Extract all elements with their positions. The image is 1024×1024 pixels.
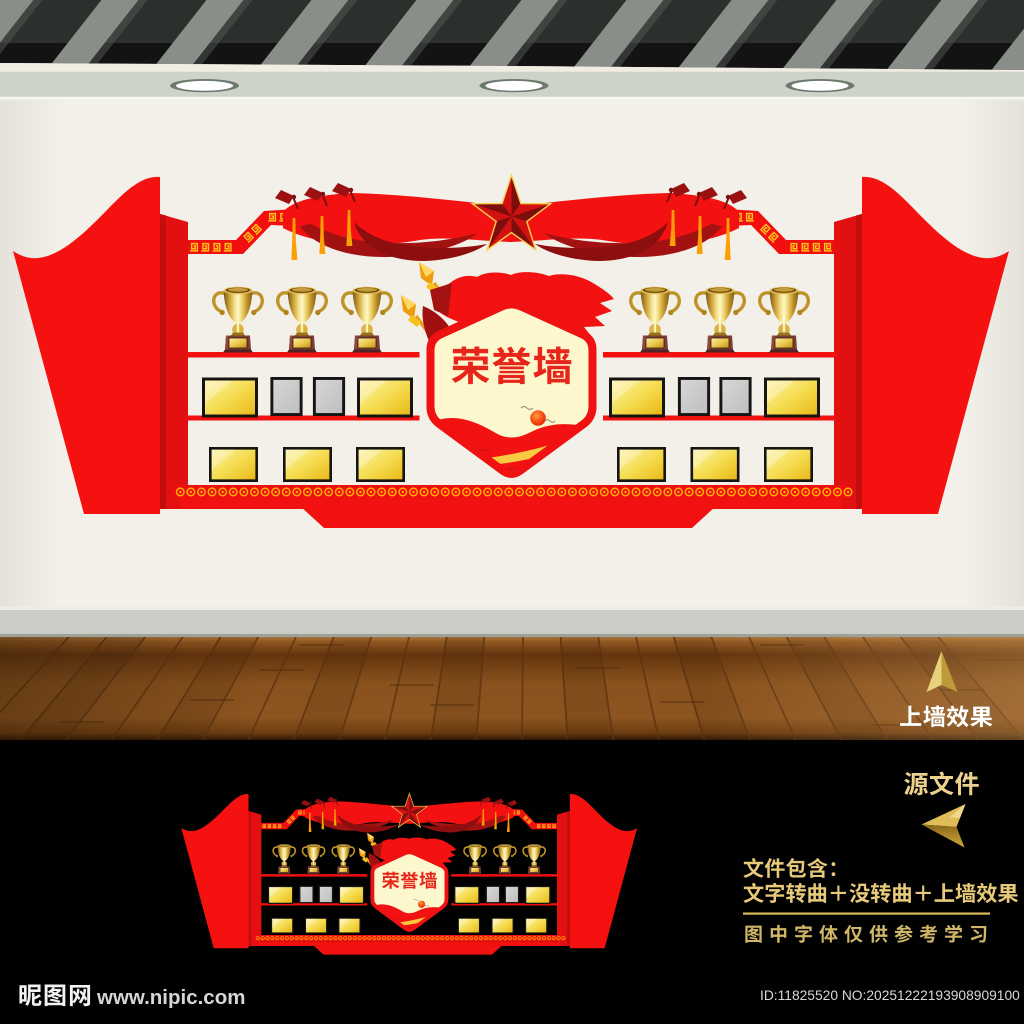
svg-text:www.nipic.com: www.nipic.com [96,986,245,1009]
svg-text:ID:11825520 NO:202512221939089: ID:11825520 NO:20251222193908909100 [760,988,1020,1003]
